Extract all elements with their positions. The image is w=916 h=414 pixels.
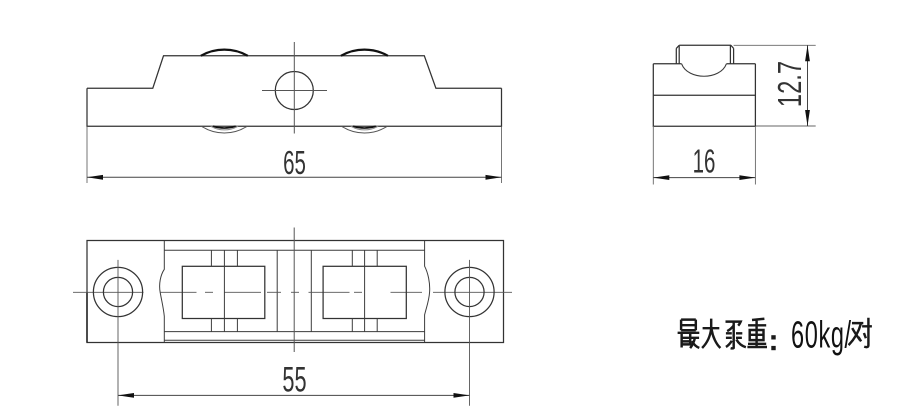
svg-text:55: 55 bbox=[282, 361, 306, 399]
svg-text:65: 65 bbox=[283, 144, 306, 181]
svg-text:16: 16 bbox=[693, 142, 716, 179]
svg-text:60kg/: 60kg/ bbox=[791, 313, 852, 356]
svg-text:12.7: 12.7 bbox=[772, 61, 809, 107]
